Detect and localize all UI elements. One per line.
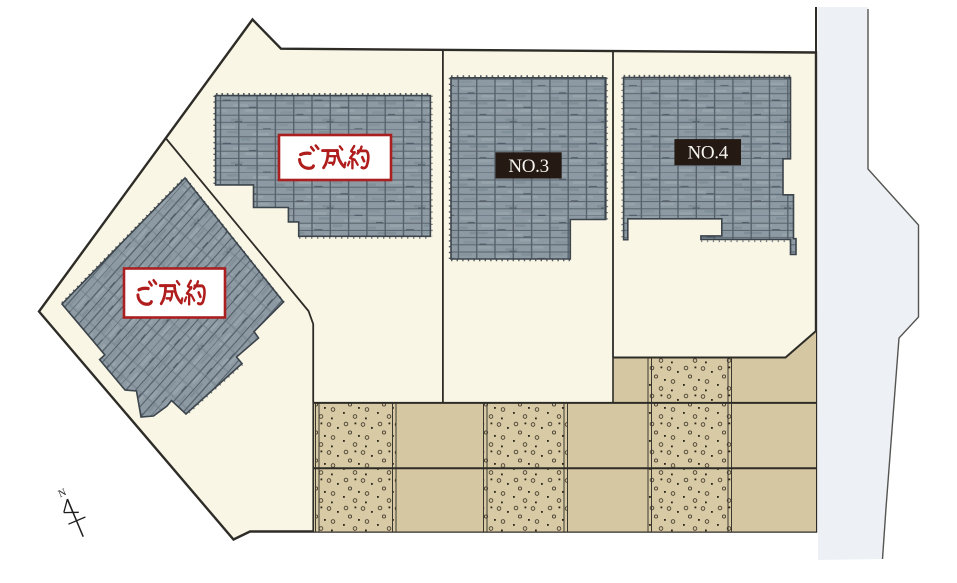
svg-text:NO.3: NO.3 xyxy=(508,156,549,177)
svg-text:NO.4: NO.4 xyxy=(687,143,728,164)
